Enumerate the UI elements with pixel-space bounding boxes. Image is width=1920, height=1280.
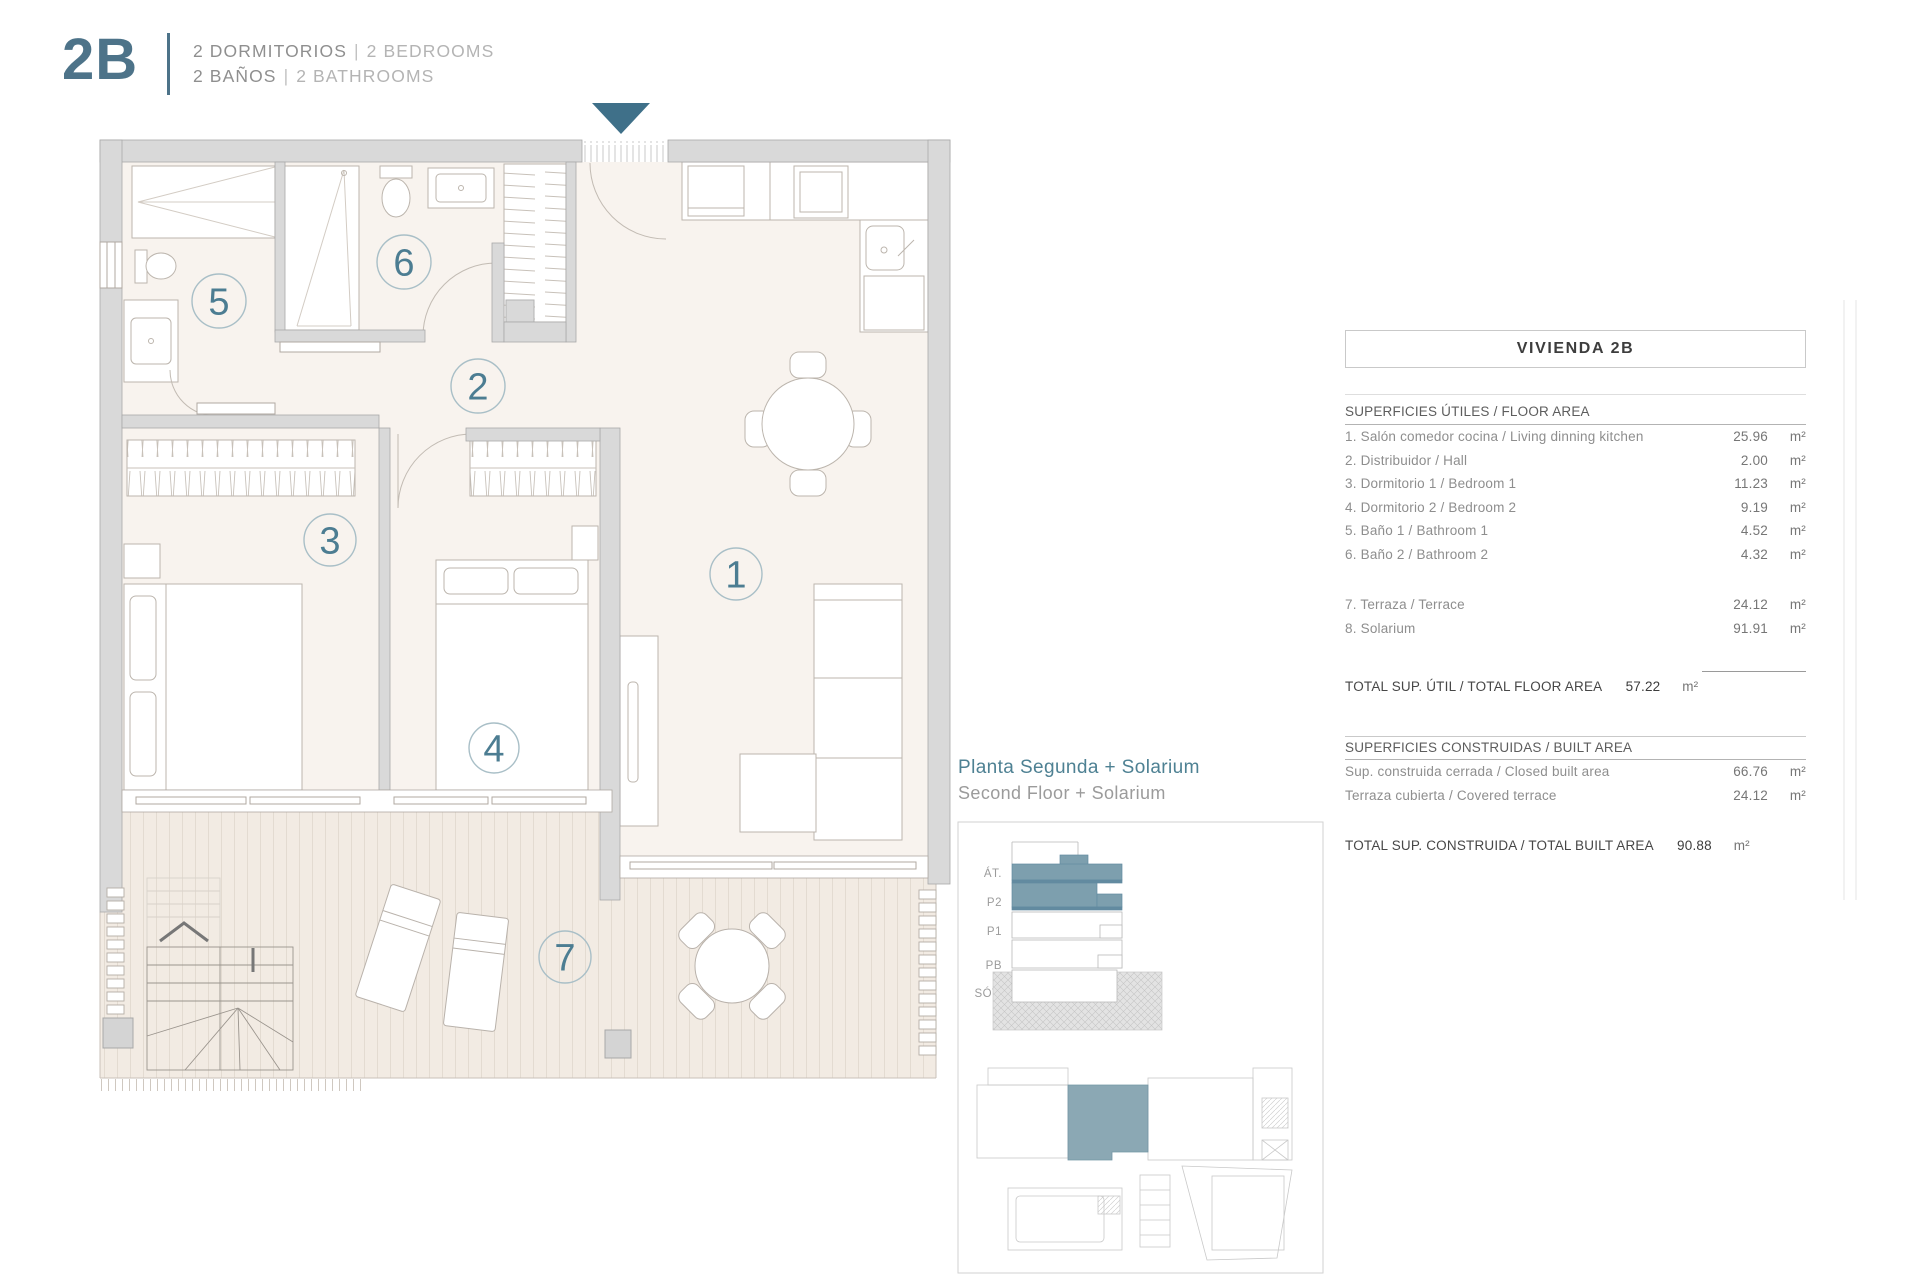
total-label: TOTAL SUP. CONSTRUIDA / TOTAL BUILT AREA xyxy=(1345,838,1654,853)
area-row: 1. Salón comedor cocina / Living dinning… xyxy=(1345,425,1806,449)
location-title-es: Planta Segunda + Solarium xyxy=(958,757,1200,779)
area-row-value: 91.91 xyxy=(1710,621,1768,636)
area-row-label: 7. Terraza / Terrace xyxy=(1345,597,1710,612)
area-row: 5. Baño 1 / Bathroom 14.52m² xyxy=(1345,519,1806,543)
area-row-value: 9.19 xyxy=(1710,500,1768,515)
floor-area-heading: SUPERFICIES ÚTILES / FLOOR AREA xyxy=(1345,395,1806,425)
areas-panel: VIVIENDA 2B SUPERFICIES ÚTILES / FLOOR A… xyxy=(1345,330,1806,859)
svg-text:1: 1 xyxy=(725,554,746,596)
area-row-value: 24.12 xyxy=(1710,788,1768,803)
total-value: 90.88 xyxy=(1654,838,1712,853)
area-row-unit: m² xyxy=(1768,500,1806,515)
area-row-value: 25.96 xyxy=(1710,429,1768,444)
terrace-post xyxy=(103,1018,133,1048)
total-value: 57.22 xyxy=(1602,679,1660,694)
area-row: 4. Dormitorio 2 / Bedroom 29.19m² xyxy=(1345,496,1806,520)
area-row-label: Sup. construida cerrada / Closed built a… xyxy=(1345,764,1710,779)
built-area-heading: SUPERFICIES CONSTRUIDAS / BUILT AREA xyxy=(1345,737,1806,760)
svg-text:7: 7 xyxy=(554,937,575,979)
area-row-label: 5. Baño 1 / Bathroom 1 xyxy=(1345,523,1710,538)
total-unit: m² xyxy=(1660,679,1698,694)
area-row-unit: m² xyxy=(1768,453,1806,468)
area-row-label: Terraza cubierta / Covered terrace xyxy=(1345,788,1710,803)
total-label: TOTAL SUP. ÚTIL / TOTAL FLOOR AREA xyxy=(1345,679,1602,694)
kitchen-sink xyxy=(866,226,904,270)
living-window xyxy=(620,856,928,878)
area-row-label: 2. Distribuidor / Hall xyxy=(1345,453,1710,468)
area-row: 8. Solarium91.91m² xyxy=(1345,617,1806,641)
area-row-label: 8. Solarium xyxy=(1345,621,1710,636)
area-row-unit: m² xyxy=(1768,429,1806,444)
area-row: 2. Distribuidor / Hall2.00m² xyxy=(1345,449,1806,473)
sliding-door xyxy=(280,342,380,352)
lower-floors xyxy=(1012,912,1122,968)
area-row: 6. Baño 2 / Bathroom 24.32m² xyxy=(1345,543,1806,567)
floor-area-total: TOTAL SUP. ÚTIL / TOTAL FLOOR AREA57.22m… xyxy=(1345,672,1806,700)
area-row: 7. Terraza / Terrace24.12m² xyxy=(1345,593,1806,617)
area-row-label: 1. Salón comedor cocina / Living dinning… xyxy=(1345,429,1710,444)
bedroom-windows xyxy=(122,790,612,812)
area-row-value: 24.12 xyxy=(1710,597,1768,612)
area-row-value: 4.32 xyxy=(1710,547,1768,562)
location-diagram: ÁT. P2 P1 PB SÓT. xyxy=(958,822,1323,1273)
unit-highlight xyxy=(1068,1085,1148,1160)
sheet-edge xyxy=(1844,300,1856,900)
area-row-label: 4. Dormitorio 2 / Bedroom 2 xyxy=(1345,500,1710,515)
terrace-post xyxy=(605,1030,631,1058)
svg-text:2: 2 xyxy=(467,366,488,408)
terrace-edge-fringe xyxy=(100,1079,365,1091)
bath-window xyxy=(100,242,122,288)
area-row-unit: m² xyxy=(1768,597,1806,612)
svg-text:4: 4 xyxy=(483,728,504,770)
area-row: 3. Dormitorio 1 / Bedroom 111.23m² xyxy=(1345,472,1806,496)
floor-label: P2 xyxy=(987,897,1002,909)
area-row-unit: m² xyxy=(1768,523,1806,538)
area-row-value: 2.00 xyxy=(1710,453,1768,468)
total-unit: m² xyxy=(1712,838,1750,853)
entrance-mat xyxy=(584,141,666,162)
area-row-unit: m² xyxy=(1768,547,1806,562)
entrance-wardrobe xyxy=(504,164,566,322)
floor-label: ÁT. xyxy=(984,867,1002,880)
area-row-unit: m² xyxy=(1768,621,1806,636)
area-row: Sup. construida cerrada / Closed built a… xyxy=(1345,760,1806,784)
floor-label: P1 xyxy=(987,926,1002,938)
panel-title: VIVIENDA 2B xyxy=(1345,330,1806,368)
area-row-unit: m² xyxy=(1768,476,1806,491)
built-area-total: TOTAL SUP. CONSTRUIDA / TOTAL BUILT AREA… xyxy=(1345,831,1806,859)
entrance-arrow-icon xyxy=(592,103,650,134)
svg-text:5: 5 xyxy=(208,281,229,323)
ground xyxy=(993,970,1162,1030)
area-row-unit: m² xyxy=(1768,788,1806,803)
svg-text:6: 6 xyxy=(393,242,414,284)
floor-label: PB xyxy=(986,960,1002,972)
sliding-door xyxy=(197,403,275,414)
area-row-value: 4.52 xyxy=(1710,523,1768,538)
area-row: Terraza cubierta / Covered terrace24.12m… xyxy=(1345,784,1806,808)
area-row-value: 66.76 xyxy=(1710,764,1768,779)
area-row-label: 6. Baño 2 / Bathroom 2 xyxy=(1345,547,1710,562)
area-row-label: 3. Dormitorio 1 / Bedroom 1 xyxy=(1345,476,1710,491)
area-row-unit: m² xyxy=(1768,764,1806,779)
area-row-value: 11.23 xyxy=(1710,476,1768,491)
location-title-en: Second Floor + Solarium xyxy=(958,783,1166,804)
svg-text:3: 3 xyxy=(319,520,340,562)
tv-cabinet xyxy=(620,636,658,826)
